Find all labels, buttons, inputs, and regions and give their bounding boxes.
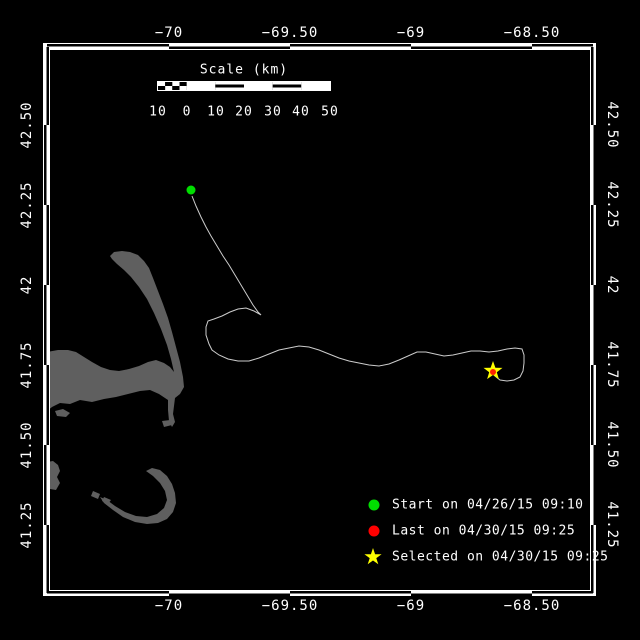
scale-bar-segment — [187, 82, 216, 90]
lon-tick-label-bottom: −69.50 — [262, 598, 319, 614]
frame-zebra-segment — [44, 285, 47, 365]
frame-zebra-segment — [594, 445, 597, 525]
frame-zebra-segment — [47, 44, 169, 47]
landmass-cape-cod — [100, 468, 176, 524]
legend-label-selected: Selected on 04/30/15 09:25 — [392, 550, 609, 565]
frame-zebra-segment — [591, 47, 594, 125]
last-marker[interactable] — [490, 369, 496, 375]
lon-tick-label-top: −69.50 — [262, 25, 319, 41]
frame-zebra-segment — [47, 525, 50, 593]
landmass-cape-cod — [55, 409, 70, 417]
landmass-cape-cod — [91, 491, 100, 499]
legend-selected-star-icon — [364, 548, 381, 564]
frame-zebra-segment — [169, 47, 290, 50]
lon-tick-label-top: −68.50 — [504, 25, 561, 41]
scale-bar-checker — [172, 86, 179, 90]
frame-zebra-segment — [411, 594, 532, 597]
scale-bar-checker — [165, 82, 172, 86]
lat-tick-label-right: 41.75 — [604, 341, 620, 388]
scale-bar-tick: 0 — [183, 105, 192, 120]
frame-zebra-segment — [290, 591, 411, 594]
frame-zebra-segment — [169, 594, 290, 597]
scale-bar-stripe — [273, 85, 302, 88]
start-marker[interactable] — [187, 186, 196, 195]
frame-zebra-segment — [532, 591, 593, 594]
frame-zebra-segment — [411, 47, 532, 50]
frame-zebra-segment — [532, 44, 593, 47]
legend-last-dot-icon — [369, 526, 380, 537]
scale-bar-tick: 10 — [149, 105, 167, 120]
frame-zebra-segment — [591, 205, 594, 285]
lat-tick-label-left: 42 — [19, 276, 35, 295]
frame-zebra-segment — [47, 591, 169, 594]
frame-zebra-segment — [47, 47, 50, 125]
frame-zebra-segment — [44, 125, 47, 205]
lat-tick-label-left: 42.50 — [19, 101, 35, 148]
scale-bar-segment — [244, 82, 273, 90]
lon-tick-label-bottom: −68.50 — [504, 598, 561, 614]
frame-zebra-segment — [44, 445, 47, 525]
landmass-cape-cod — [47, 251, 184, 427]
frame-zebra-segment — [47, 365, 50, 445]
lat-tick-label-right: 41.25 — [604, 501, 620, 548]
lat-tick-label-left: 41.25 — [19, 501, 35, 548]
scale-bar-checker — [180, 82, 187, 86]
scale-bar-checker — [180, 86, 187, 90]
scale-bar-tick: 20 — [235, 105, 253, 120]
lat-tick-label-right: 42 — [604, 276, 620, 295]
scale-bar-checker — [158, 82, 165, 86]
legend-label-last: Last on 04/30/15 09:25 — [392, 524, 575, 539]
frame-zebra-segment — [47, 205, 50, 285]
scale-bar-tick: 50 — [321, 105, 339, 120]
lat-tick-label-left: 41.50 — [19, 421, 35, 468]
scale-bar-checker — [165, 86, 172, 90]
scale-bar-tick: 10 — [207, 105, 225, 120]
scale-bar-stripe — [215, 85, 244, 88]
lat-tick-label-left: 42.25 — [19, 181, 35, 228]
lon-tick-label-top: −69 — [397, 25, 425, 41]
scale-bar-title: Scale (km) — [200, 63, 288, 78]
map-canvas[interactable] — [0, 0, 640, 640]
frame-zebra-segment — [594, 125, 597, 205]
legend-label-start: Start on 04/26/15 09:10 — [392, 498, 584, 513]
scale-bar-tick: 30 — [264, 105, 282, 120]
lat-tick-label-left: 41.75 — [19, 341, 35, 388]
lon-tick-label-bottom: −69 — [397, 598, 425, 614]
lat-tick-label-right: 42.50 — [604, 101, 620, 148]
legend-start-dot-icon — [369, 500, 380, 511]
frame-zebra-segment — [594, 285, 597, 365]
drifter-track[interactable] — [192, 196, 524, 381]
frame-zebra-segment — [591, 365, 594, 445]
map-view[interactable]: −70 −69.50 −69 −68.50 −70 −69.50 −69 −68… — [0, 0, 640, 640]
scale-bar-segment — [301, 82, 330, 90]
scale-bar-checker — [172, 82, 179, 86]
lon-tick-label-bottom: −70 — [155, 598, 183, 614]
scale-bar-tick: 40 — [292, 105, 310, 120]
scale-bar-checker — [158, 86, 165, 90]
lat-tick-label-right: 42.25 — [604, 181, 620, 228]
lon-tick-label-top: −70 — [155, 25, 183, 41]
frame-zebra-segment — [290, 44, 411, 47]
lat-tick-label-right: 41.50 — [604, 421, 620, 468]
